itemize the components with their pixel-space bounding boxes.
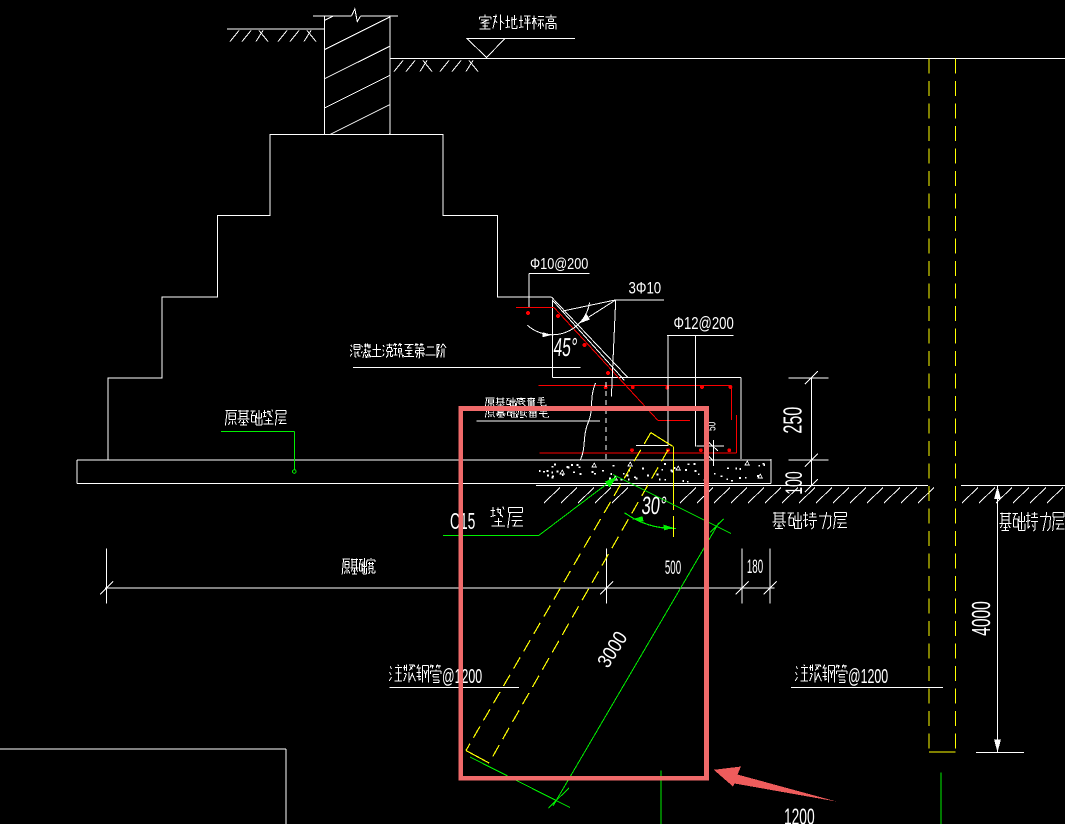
svg-text:@1200: @1200 xyxy=(848,665,888,688)
svg-text:250: 250 xyxy=(777,407,807,434)
svg-text:4000: 4000 xyxy=(967,601,996,636)
svg-text:Φ10@200: Φ10@200 xyxy=(530,256,588,273)
svg-text:1200: 1200 xyxy=(784,805,815,824)
svg-text:3Φ10: 3Φ10 xyxy=(629,279,662,298)
svg-text:180: 180 xyxy=(747,557,763,579)
svg-text:30°: 30° xyxy=(640,492,668,520)
svg-text:45°: 45° xyxy=(552,333,578,362)
svg-text:500: 500 xyxy=(665,558,681,580)
svg-text:100: 100 xyxy=(781,471,808,494)
svg-text:Φ12@200: Φ12@200 xyxy=(674,314,734,333)
